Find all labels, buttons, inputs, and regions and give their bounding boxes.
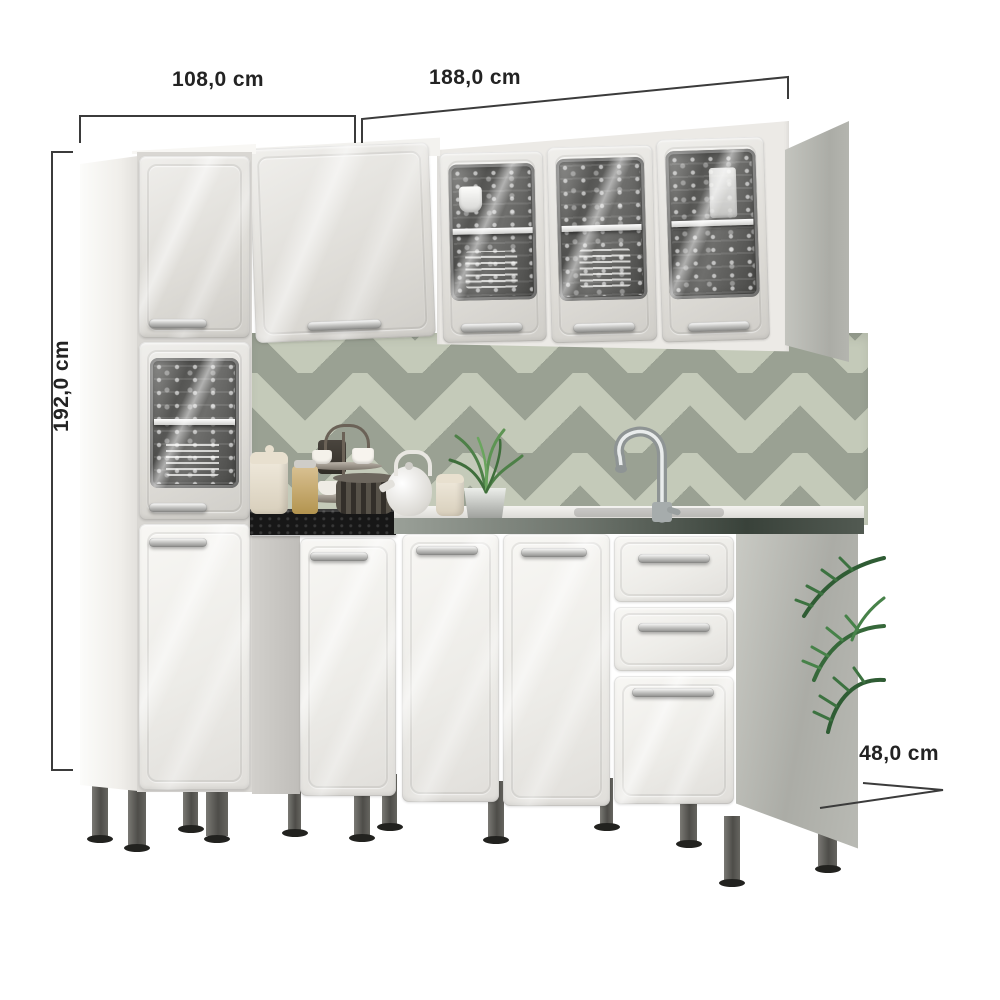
- drawer-1: [614, 536, 734, 602]
- ceramic-canister: [250, 452, 288, 514]
- dimension-label-height: 192,0 cm: [50, 306, 74, 466]
- door-handle: [149, 503, 207, 512]
- cabinet-leg: [724, 816, 740, 880]
- tall-cabinet-bottom-door: [139, 524, 250, 790]
- drawer-handle: [638, 554, 710, 563]
- cabinet-leg: [92, 782, 108, 836]
- door-groove: [511, 542, 602, 798]
- wall-cabinet-door-1: [439, 151, 547, 343]
- faucet: [598, 412, 688, 524]
- door-groove: [257, 151, 428, 335]
- drawer-2: [614, 607, 734, 671]
- snack-jar: [292, 466, 318, 514]
- door-handle: [521, 548, 587, 557]
- tall-cabinet-front: [137, 152, 252, 792]
- door-handle: [461, 322, 523, 332]
- tall-cabinet-side-panel: [80, 156, 138, 793]
- glass-reflection: [556, 157, 648, 301]
- door-groove: [410, 542, 491, 794]
- product-image: 108,0 cm 188,0 cm 192,0 cm 48,0 cm: [0, 0, 1000, 1000]
- drawer-handle: [638, 623, 710, 632]
- door-handle: [573, 322, 635, 333]
- glass-panel: [150, 358, 239, 488]
- herb-plant: [444, 424, 528, 494]
- door-handle: [149, 319, 207, 328]
- glass-panel: [665, 149, 760, 300]
- width-left-dimension-line: [80, 116, 355, 143]
- glass-reflection: [150, 358, 239, 488]
- door-handle: [416, 546, 478, 555]
- glass-reflection: [448, 163, 537, 301]
- door-groove: [147, 164, 242, 330]
- wall-cabinet-side-panel: [785, 121, 849, 362]
- cabinet-leg: [128, 785, 146, 845]
- corner-base-filler: [252, 536, 300, 794]
- base-door-2: [503, 534, 610, 806]
- teacup: [352, 448, 374, 464]
- kettle-handle: [394, 450, 432, 476]
- glass-reflection: [665, 149, 760, 300]
- door-groove: [147, 532, 242, 782]
- glass-panel: [448, 163, 537, 301]
- kettle: [386, 466, 432, 516]
- door-handle: [632, 688, 714, 697]
- canister-knob: [265, 445, 274, 454]
- corner-wall-cabinet-door: [249, 142, 436, 343]
- door-handle: [149, 538, 207, 547]
- drawer-door: [614, 676, 734, 804]
- palm-plant: [732, 540, 888, 760]
- glass-panel: [556, 157, 648, 301]
- door-groove: [308, 546, 388, 788]
- door-handle: [310, 552, 368, 561]
- jar-lid: [294, 460, 316, 468]
- wall-cabinet-door-2: [546, 145, 657, 344]
- door-groove: [622, 684, 726, 796]
- dimension-label-width-right: 188,0 cm: [395, 66, 555, 90]
- tall-cabinet-top-door: [139, 156, 250, 338]
- drawer-groove: [620, 542, 728, 596]
- wall-cabinet-door-3: [656, 136, 770, 342]
- dimension-label-width-left: 108,0 cm: [118, 68, 318, 92]
- kettle-knob: [405, 462, 413, 470]
- dimension-label-depth: 48,0 cm: [839, 742, 959, 766]
- base-door-1: [402, 534, 499, 802]
- drawer-stack: [614, 534, 734, 804]
- drawer-groove: [620, 613, 728, 665]
- corner-base-door: [300, 538, 396, 796]
- tall-cabinet-glass-door: [139, 342, 250, 520]
